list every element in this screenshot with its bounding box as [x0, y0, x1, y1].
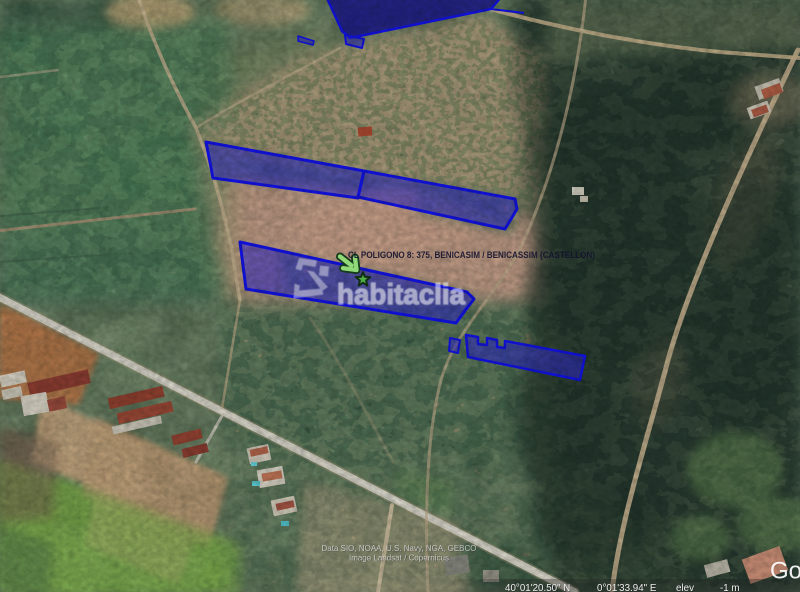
svg-text:elev: elev: [676, 583, 694, 592]
svg-text:-1 m: -1 m: [720, 583, 740, 592]
svg-text:Goo: Goo: [770, 558, 800, 585]
svg-text:0°01'33.94" E: 0°01'33.94" E: [597, 583, 657, 592]
svg-text:CL POLIGONO 8: 375, BENICASIM: CL POLIGONO 8: 375, BENICASIM / BENICASS…: [348, 250, 595, 260]
svg-text:Image Landsat / Copernicus: Image Landsat / Copernicus: [349, 554, 449, 563]
svg-text:Data SIO, NOAA, U.S. Navy, NGA: Data SIO, NOAA, U.S. Navy, NGA, GEBCO: [322, 544, 477, 553]
svg-text:40°01'20.50" N: 40°01'20.50" N: [505, 583, 570, 592]
svg-text:habitaclia: habitaclia: [337, 279, 466, 311]
